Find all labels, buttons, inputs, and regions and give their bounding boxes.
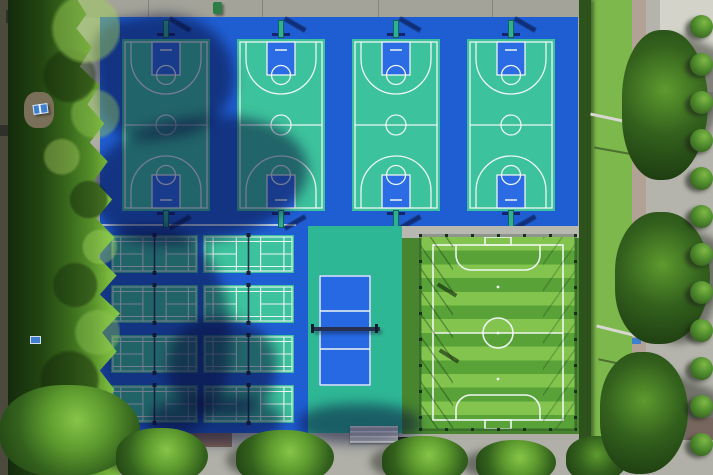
shrub [690, 129, 713, 152]
shrub [690, 205, 713, 228]
shrub-row-east [0, 0, 713, 475]
shrub [690, 15, 713, 38]
shrub [690, 319, 713, 342]
shrub [690, 167, 713, 190]
shrub [690, 91, 713, 114]
sports-complex-aerial-photo [0, 0, 713, 475]
shrub [690, 433, 713, 456]
shrub [690, 281, 713, 304]
shrub [690, 357, 713, 380]
shrub [690, 395, 713, 418]
shrub [690, 243, 713, 266]
shrub [690, 53, 713, 76]
